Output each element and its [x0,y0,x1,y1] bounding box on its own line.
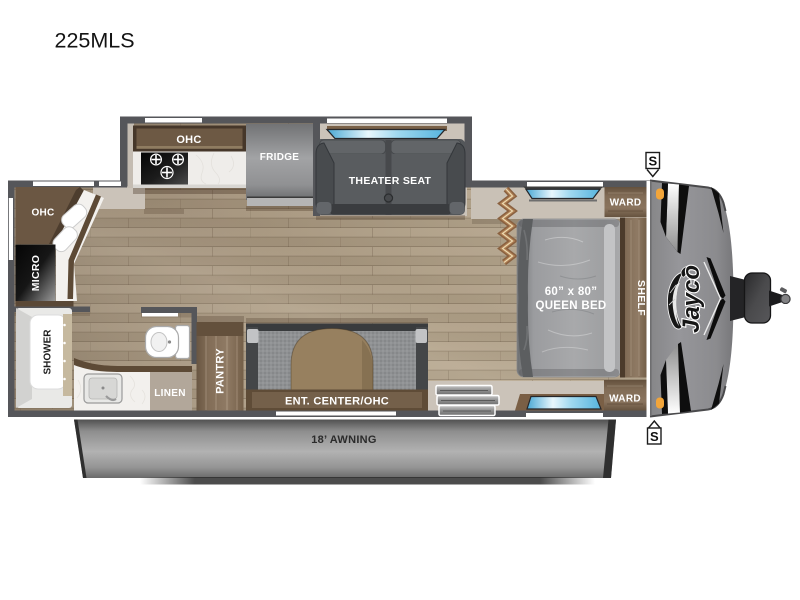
svg-text:OHC: OHC [31,208,54,219]
svg-text:THEATER SEAT: THEATER SEAT [349,175,432,187]
svg-text:S: S [650,429,659,444]
svg-text:WARD: WARD [609,394,641,405]
svg-text:OHC: OHC [176,134,201,146]
svg-text:WARD: WARD [610,198,642,209]
svg-text:SHOWER: SHOWER [43,329,54,375]
svg-text:18’ AWNING: 18’ AWNING [311,434,377,446]
svg-text:SHELF: SHELF [635,280,647,316]
svg-text:60” x 80”: 60” x 80” [545,286,598,298]
svg-text:ENT. CENTER/OHC: ENT. CENTER/OHC [285,396,389,408]
svg-text:MICRO: MICRO [30,255,42,292]
svg-text:Jayco: Jayco [678,265,705,333]
svg-text:LINEN: LINEN [154,388,186,399]
svg-text:PANTRY: PANTRY [215,348,227,394]
svg-text:FRIDGE: FRIDGE [260,152,300,163]
svg-text:QUEEN BED: QUEEN BED [535,300,606,312]
svg-text:S: S [648,154,657,169]
svg-text:225MLS: 225MLS [55,29,135,53]
